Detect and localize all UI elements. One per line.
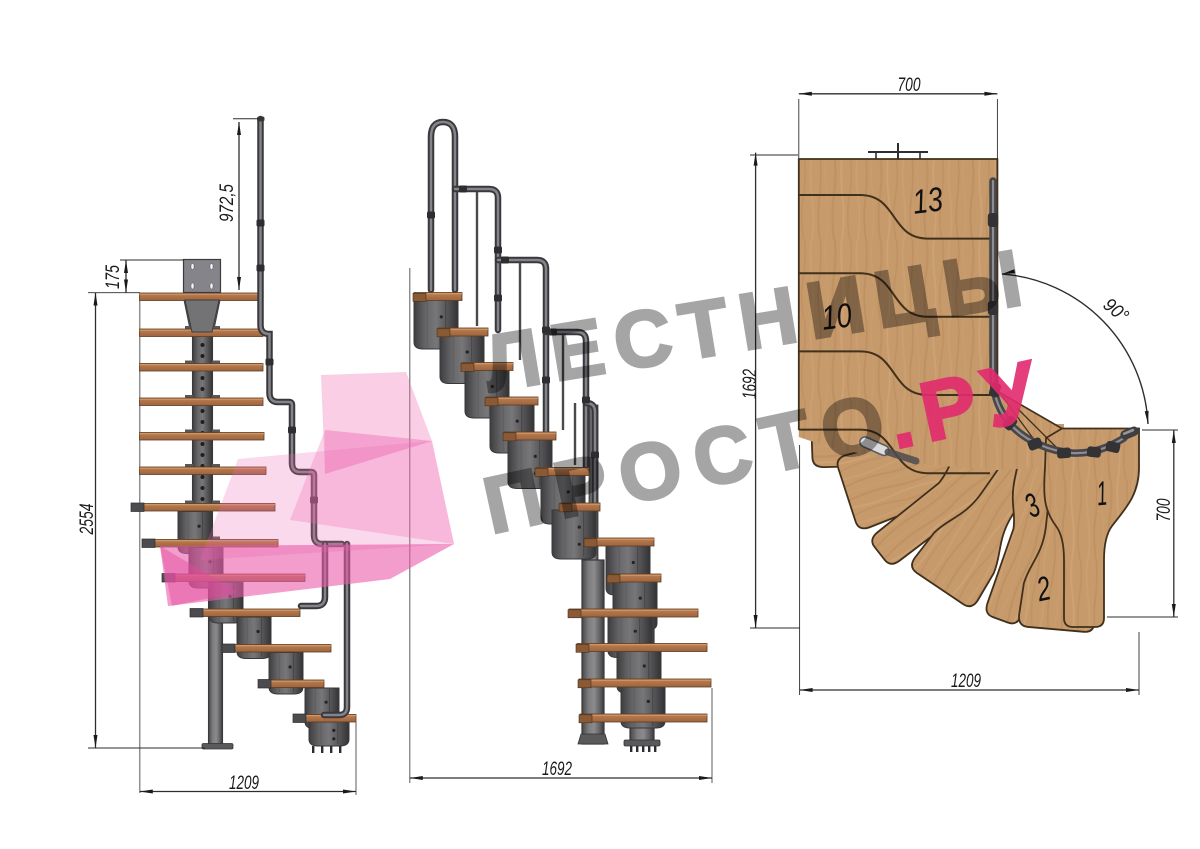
svg-text:1209: 1209	[229, 773, 259, 794]
svg-text:13: 13	[910, 180, 944, 221]
svg-text:972,5: 972,5	[217, 184, 238, 222]
svg-text:700: 700	[1154, 498, 1175, 521]
svg-text:175: 175	[103, 265, 124, 289]
svg-text:1209: 1209	[951, 671, 981, 692]
svg-text:1692: 1692	[740, 369, 761, 399]
svg-text:1692: 1692	[542, 759, 572, 780]
svg-text:2554: 2554	[77, 504, 98, 536]
svg-text:700: 700	[898, 75, 921, 96]
